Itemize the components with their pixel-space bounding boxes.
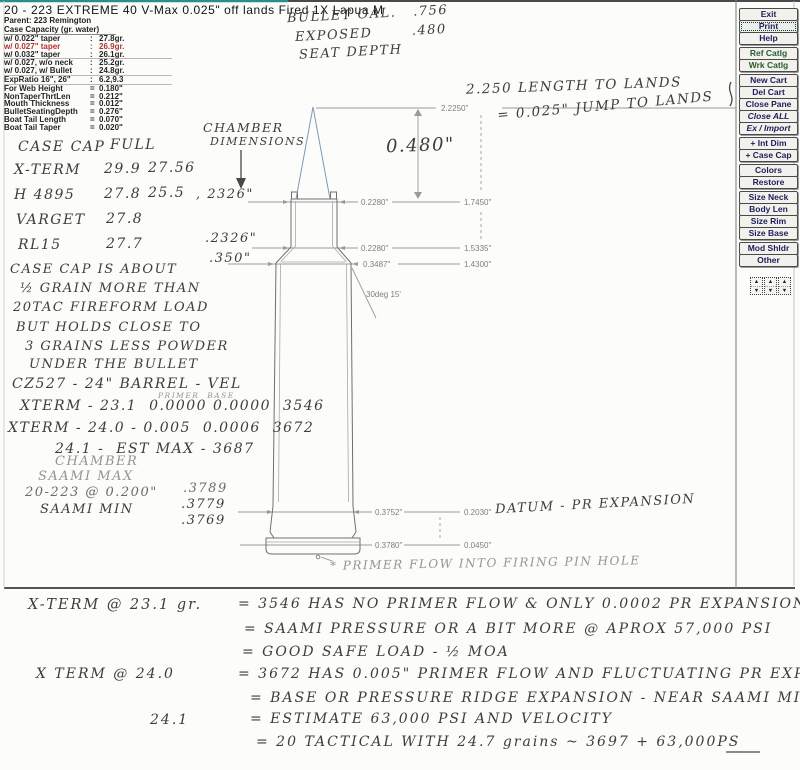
- spinner-down-icon[interactable]: ▼: [779, 287, 790, 295]
- note-case-cap-line: 3 GRAINS LESS POWDER: [25, 340, 229, 353]
- spinner-up-icon[interactable]: ▲: [765, 278, 776, 287]
- dimension-lines: [228, 108, 736, 545]
- cap-table-powder: VARGET: [16, 213, 86, 227]
- note-case-cap-line: UNDER THE BULLET: [29, 358, 199, 371]
- cap-table-powder: X-TERM: [14, 163, 81, 177]
- cap-table-full: 29.9: [104, 162, 141, 176]
- note-chamber-saami: CHAMBER: [55, 455, 138, 468]
- note-exposed-dim: 0.480": [386, 136, 455, 156]
- note-chamber-dims-2: DIMENSIONS: [210, 136, 305, 147]
- spec-table: w/ 0.022" taper:27.8gr. w/ 0.027" taper:…: [4, 35, 172, 132]
- note-chamber-value: .3789: [183, 482, 228, 495]
- note-datum: DATUM - PR EXPANSION: [495, 493, 696, 516]
- cap-table-header-2: FULL: [110, 138, 156, 152]
- spinner-down-icon[interactable]: ▼: [751, 287, 762, 295]
- length-dimension: 0.0450": [464, 541, 491, 550]
- restore-button[interactable]: Restore: [739, 176, 798, 189]
- note-velocity-line: CZ527 - 24" BARREL - VEL: [12, 377, 242, 391]
- help-button[interactable]: Help: [739, 32, 798, 45]
- note-case-cap-line: BUT HOLDS CLOSE TO: [16, 321, 202, 334]
- note-velocity-line: XTERM - 24.0 - 0.005 0.0006 3672: [8, 421, 314, 435]
- note-neck-dia-2: .2326": [205, 232, 257, 245]
- cartridge-design-app: 20 - 223 EXTREME 40 V-Max 0.025" off lan…: [0, 0, 800, 770]
- add-case-cap-button[interactable]: + Case Cap: [739, 149, 798, 162]
- dia-dimension: 0.2280": [361, 198, 388, 207]
- dia-dimension: 0.3487": [363, 260, 390, 269]
- summary-line: X-TERM @ 23.1 gr.: [28, 598, 202, 613]
- cap-table-full: 27.7: [106, 237, 143, 251]
- stepper-1[interactable]: ▲ ▼: [750, 277, 763, 295]
- length-dimension: 1.7450": [464, 198, 491, 207]
- summary-line: X TERM @ 24.0: [36, 667, 175, 681]
- case-inner-walls: [266, 201, 360, 542]
- spinner-down-icon[interactable]: ▼: [765, 287, 776, 295]
- note-chamber-value: .3769: [181, 514, 226, 527]
- size-base-button[interactable]: Size Base: [739, 227, 798, 240]
- length-dimension: 1.4300": [464, 260, 491, 269]
- stepper-3[interactable]: ▲ ▼: [778, 277, 791, 295]
- primer-flow-mark: [316, 555, 320, 559]
- summary-line: = 3546 HAS NO PRIMER FLOW & ONLY 0.0002 …: [238, 597, 800, 611]
- note-chamber-value: .3779: [181, 498, 226, 511]
- summary-line: 24.1: [150, 713, 189, 727]
- cap-table-powder: RL15: [18, 238, 62, 252]
- summary-line: = GOOD SAFE LOAD - ½ MOA: [242, 645, 510, 659]
- note-chamber-saami: SAAMI MAX: [38, 470, 134, 483]
- note-chamber-saami: 20-223 @ 0.200": [25, 486, 158, 499]
- dia-dimension: 0.3752": [375, 508, 402, 517]
- length-dimension: 0.2030": [464, 508, 491, 517]
- note-case-cap-line: ½ GRAIN MORE THAN: [20, 282, 201, 295]
- note-neck-dia-1: , 2326": [196, 188, 254, 201]
- parent-cartridge-label: Parent: 223 Remington: [4, 16, 91, 25]
- note-case-cap-line: 20TAC FIREFORM LOAD: [13, 301, 209, 314]
- cap-table-full: 27.8: [106, 212, 143, 226]
- cap-table-full: 27.8: [104, 187, 141, 201]
- summary-line: = 3672 HAS 0.005" PRIMER FLOW AND FLUCTU…: [238, 667, 800, 681]
- case-outline: [266, 192, 360, 554]
- stepper-2[interactable]: ▲ ▼: [764, 277, 777, 295]
- dimension-arrowheads: [267, 109, 422, 514]
- length-dimension: 1.5335": [464, 244, 491, 253]
- shoulder-angle-label: 30deg 15': [366, 290, 401, 299]
- note-primer-flow: * PRIMER FLOW INTO FIRING PIN HOLE: [330, 554, 641, 571]
- summary-line: = 20 TACTICAL WITH 24.7 grains ~ 3697 + …: [256, 735, 740, 749]
- wrk-catalog-button[interactable]: Wrk Catlg: [739, 59, 798, 72]
- bullet-outline: [296, 107, 330, 199]
- note-velocity-line: XTERM - 23.1 0.0000 0.0000 3546: [20, 399, 325, 413]
- summary-line: = SAAMI PRESSURE OR A BIT MORE @ APROX 5…: [244, 622, 772, 636]
- cap-table-header-1: CASE CAP: [18, 140, 105, 154]
- cap-table-fired: 25.5: [148, 186, 185, 200]
- spinner-up-icon[interactable]: ▲: [779, 278, 790, 287]
- note-case-cap-line: CASE CAP IS ABOUT: [10, 263, 177, 276]
- note-seat-depth: SEAT DEPTH: [299, 43, 403, 61]
- summary-line: = ESTIMATE 63,000 PSI AND VELOCITY: [250, 712, 613, 726]
- cap-table-fired: 27.56: [148, 161, 196, 175]
- note-chamber-dims-1: CHAMBER: [203, 122, 284, 135]
- other-button[interactable]: Other: [739, 254, 798, 267]
- table-row: Boat Tail Taper=0.020": [4, 124, 172, 132]
- oal-dimension: 2.2250": [441, 104, 468, 113]
- cap-table-powder: H 4895: [14, 188, 75, 202]
- note-chamber-saami: SAAMI MIN: [40, 503, 134, 516]
- spinner-up-icon[interactable]: ▲: [751, 278, 762, 287]
- note-exposed: EXPOSED .480: [295, 23, 447, 44]
- note-shoulder-dia: .350": [209, 252, 251, 265]
- ex-import-button[interactable]: Ex / Import: [739, 122, 798, 135]
- summary-line: = BASE OR PRESSURE RIDGE EXPANSION - NEA…: [250, 691, 800, 705]
- dia-dimension: 0.3780": [375, 541, 402, 550]
- dia-dimension: 0.2280": [361, 244, 388, 253]
